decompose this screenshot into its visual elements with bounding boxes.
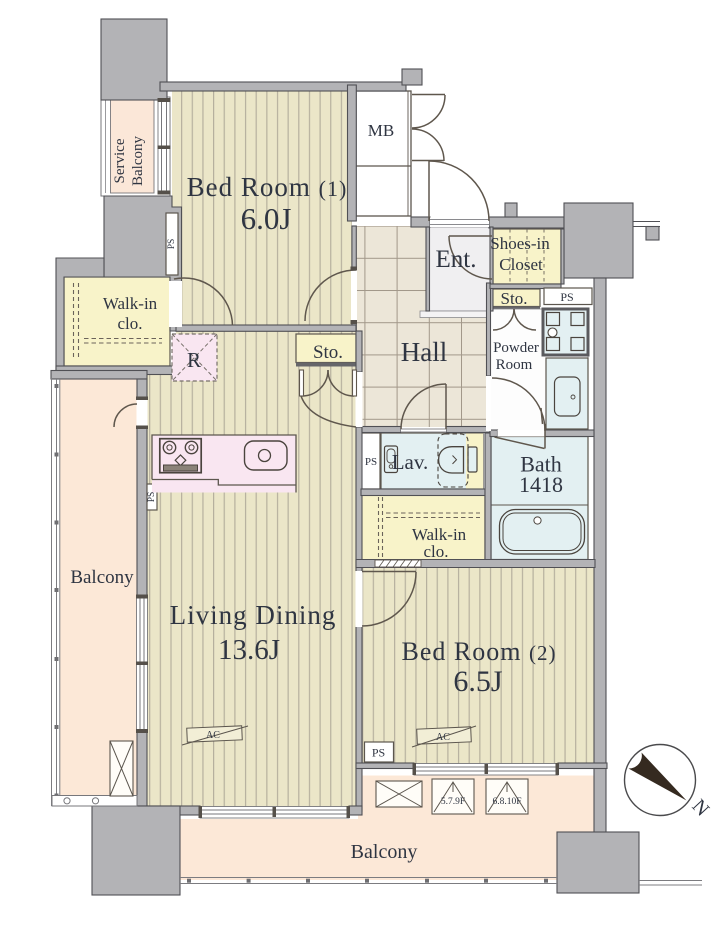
svg-text:Sto.: Sto. (501, 289, 528, 308)
svg-text:Bed Room (1): Bed Room (1) (187, 172, 348, 202)
svg-text:Service: Service (112, 138, 128, 183)
svg-text:R: R (187, 348, 201, 372)
svg-text:Living Dining: Living Dining (170, 600, 337, 630)
svg-text:PS: PS (167, 239, 177, 250)
svg-text:MB: MB (368, 121, 394, 140)
svg-text:PS: PS (372, 746, 385, 760)
svg-text:6.5J: 6.5J (453, 665, 503, 698)
svg-text:Lav.: Lav. (392, 450, 429, 474)
svg-text:clo.: clo. (117, 314, 142, 333)
svg-text:Balcony: Balcony (70, 567, 134, 588)
svg-text:PS: PS (560, 290, 573, 304)
svg-text:Hall: Hall (401, 337, 448, 367)
svg-text:Shoes-in: Shoes-in (490, 234, 550, 253)
svg-text:Powder: Powder (493, 340, 539, 356)
svg-text:clo.: clo. (423, 542, 448, 561)
svg-text:Ent.: Ent. (436, 246, 477, 273)
svg-text:Sto.: Sto. (313, 342, 343, 363)
svg-text:Closet: Closet (499, 255, 543, 274)
svg-text:Bed Room (2): Bed Room (2) (402, 637, 557, 666)
svg-text:PS: PS (365, 456, 377, 468)
svg-text:13.6J: 13.6J (218, 634, 280, 666)
svg-text:6.8.10F: 6.8.10F (492, 797, 521, 807)
svg-text:AC: AC (436, 732, 450, 743)
svg-text:6.0J: 6.0J (241, 201, 292, 236)
svg-text:Balcony: Balcony (351, 841, 418, 863)
svg-text:PS: PS (147, 492, 157, 503)
svg-text:AC: AC (206, 730, 220, 741)
svg-text:Room: Room (496, 357, 533, 373)
svg-text:Balcony: Balcony (130, 136, 146, 186)
svg-text:1418: 1418 (519, 472, 563, 497)
svg-text:5.7.9F: 5.7.9F (441, 797, 465, 807)
svg-text:Walk-in: Walk-in (103, 294, 158, 313)
